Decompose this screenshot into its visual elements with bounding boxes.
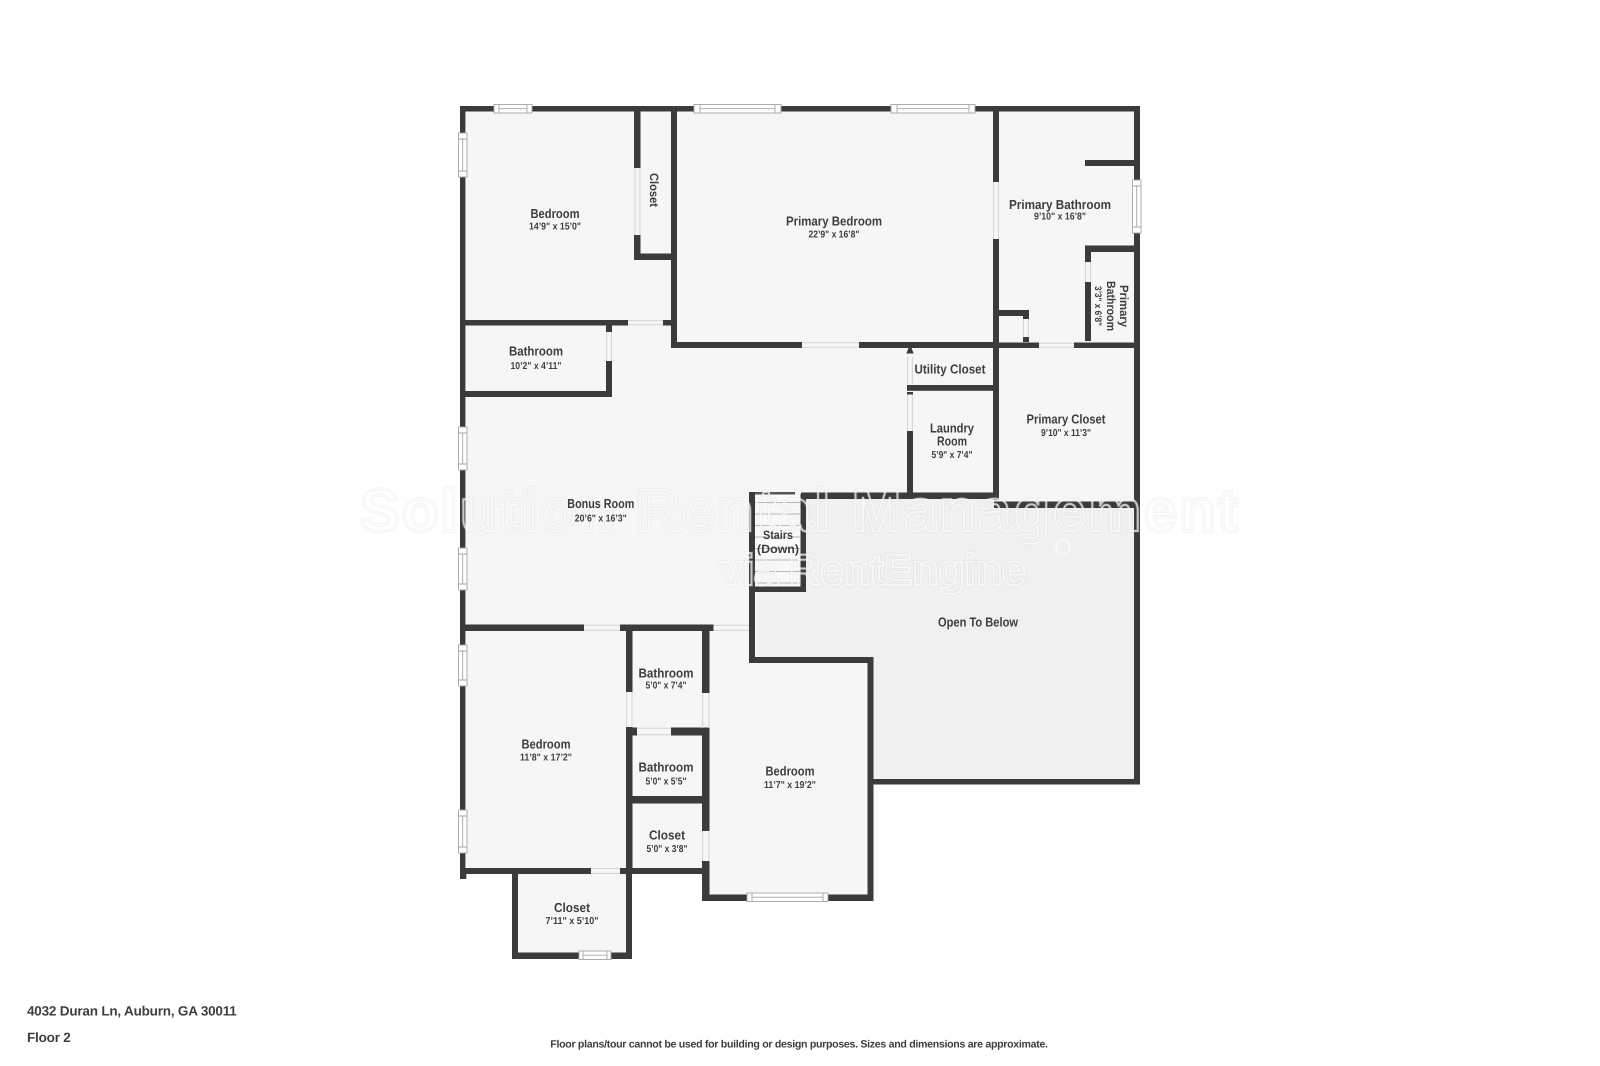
svg-text:Primary Bedroom: Primary Bedroom — [786, 214, 882, 229]
svg-text:Primary: Primary — [1117, 285, 1131, 327]
svg-text:22’9" x 16’8": 22’9" x 16’8" — [809, 230, 860, 241]
svg-text:4032 Duran Ln, Auburn, GA 3001: 4032 Duran Ln, Auburn, GA 30011 — [27, 1004, 237, 1019]
svg-text:Bedroom: Bedroom — [531, 206, 580, 221]
svg-text:Floor plans/tour cannot be use: Floor plans/tour cannot be used for buil… — [550, 1039, 1048, 1051]
svg-text:Bathroom: Bathroom — [639, 665, 694, 680]
svg-text:11’8" x 17’2": 11’8" x 17’2" — [520, 753, 572, 764]
svg-text:11’7" x 19’2": 11’7" x 19’2" — [764, 780, 816, 791]
svg-text:Solution Rental Management: Solution Rental Management — [360, 477, 1241, 544]
svg-text:Closet: Closet — [647, 173, 661, 207]
svg-text:14’9" x 15’0": 14’9" x 15’0" — [529, 222, 581, 233]
svg-text:10’2" x 4’11": 10’2" x 4’11" — [511, 361, 562, 372]
svg-text:Primary Closet: Primary Closet — [1027, 412, 1107, 427]
svg-text:Open To Below: Open To Below — [938, 615, 1019, 630]
svg-text:Utility Closet: Utility Closet — [915, 362, 987, 377]
svg-text:Floor 2: Floor 2 — [27, 1030, 71, 1045]
svg-text:Bonus Room: Bonus Room — [567, 496, 634, 511]
svg-text:Primary Bathroom: Primary Bathroom — [1009, 197, 1111, 212]
svg-text:7’11" x 5’10": 7’11" x 5’10" — [546, 916, 599, 927]
svg-text:3’3" x 6’8": 3’3" x 6’8" — [1092, 286, 1103, 326]
svg-text:5’0" x 5’5": 5’0" x 5’5" — [646, 776, 687, 787]
svg-text:Closet: Closet — [554, 900, 591, 915]
svg-text:20’6" x 16’3": 20’6" x 16’3" — [575, 513, 627, 524]
svg-text:Room: Room — [937, 433, 967, 448]
svg-text:Closet: Closet — [649, 827, 686, 842]
svg-text:Stairs: Stairs — [763, 528, 793, 542]
svg-text:Bathroom: Bathroom — [639, 760, 694, 775]
svg-text:5’0" x 3’8": 5’0" x 3’8" — [647, 844, 688, 855]
svg-text:Bedroom: Bedroom — [766, 764, 815, 779]
svg-text:Bedroom: Bedroom — [522, 737, 571, 752]
svg-text:9’10" x 11’3": 9’10" x 11’3" — [1041, 428, 1091, 439]
svg-text:9’10" x 16’8": 9’10" x 16’8" — [1034, 212, 1086, 223]
svg-text:5’0" x 7’4": 5’0" x 7’4" — [646, 680, 687, 691]
svg-text:5’9" x 7’4": 5’9" x 7’4" — [932, 450, 973, 461]
svg-text:Bathroom: Bathroom — [509, 344, 563, 359]
svg-text:(Down): (Down) — [757, 542, 799, 556]
svg-text:Bathroom: Bathroom — [1104, 281, 1118, 331]
